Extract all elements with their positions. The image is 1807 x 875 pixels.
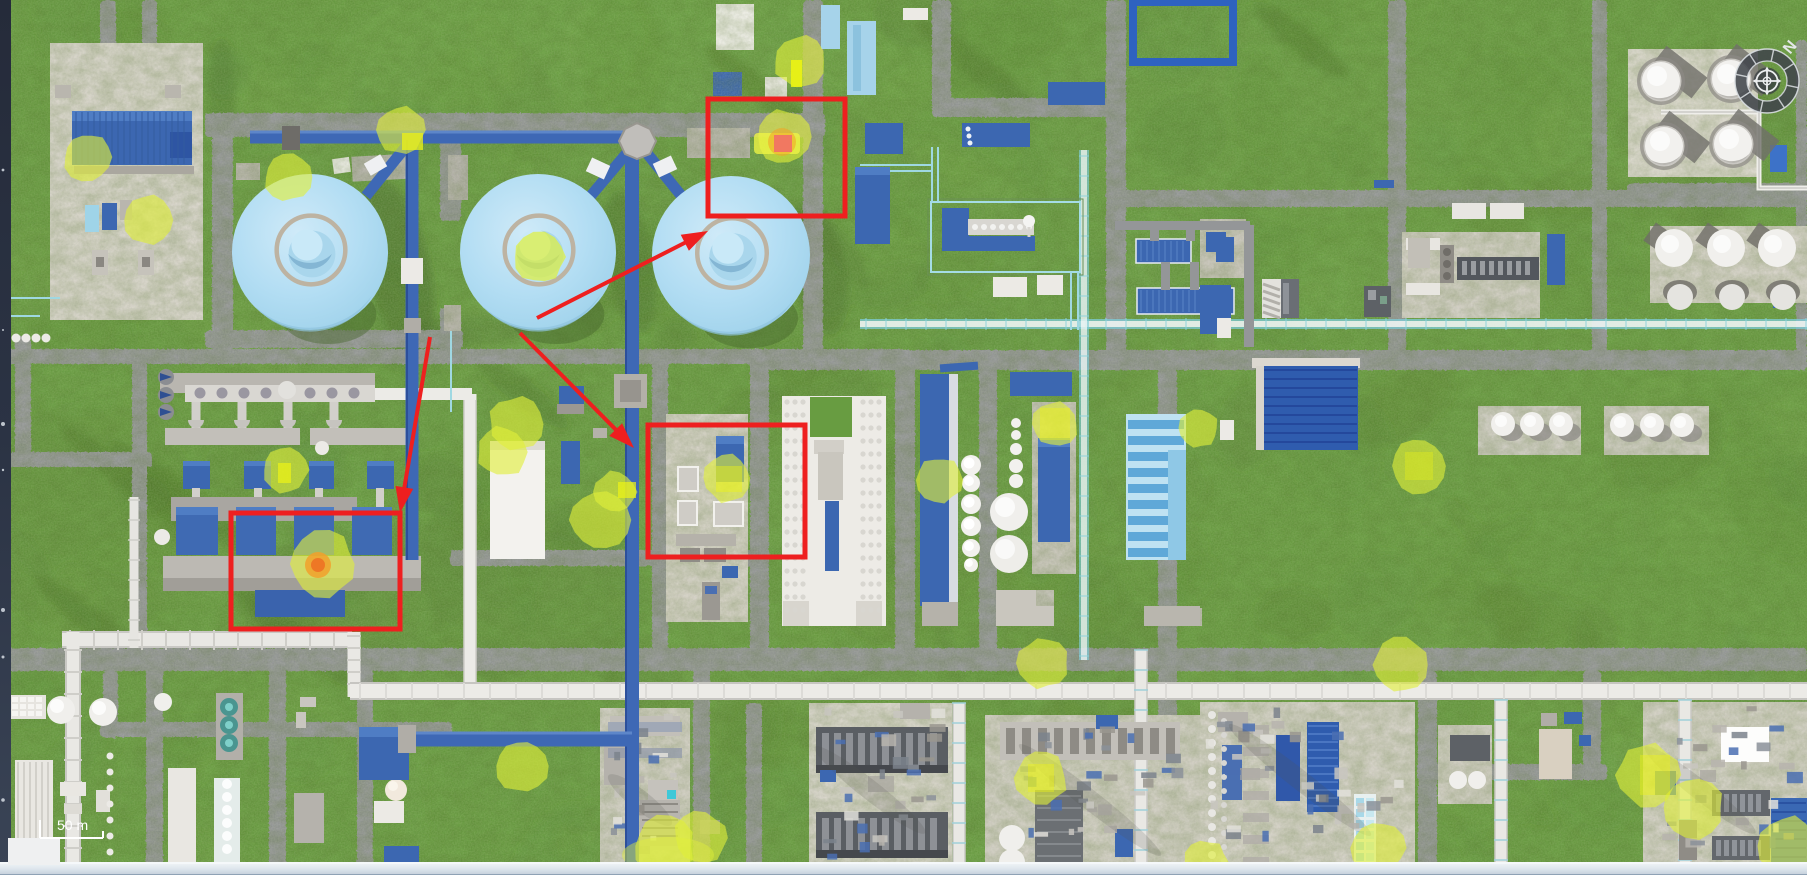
svg-text:50 m: 50 m [57, 817, 88, 833]
